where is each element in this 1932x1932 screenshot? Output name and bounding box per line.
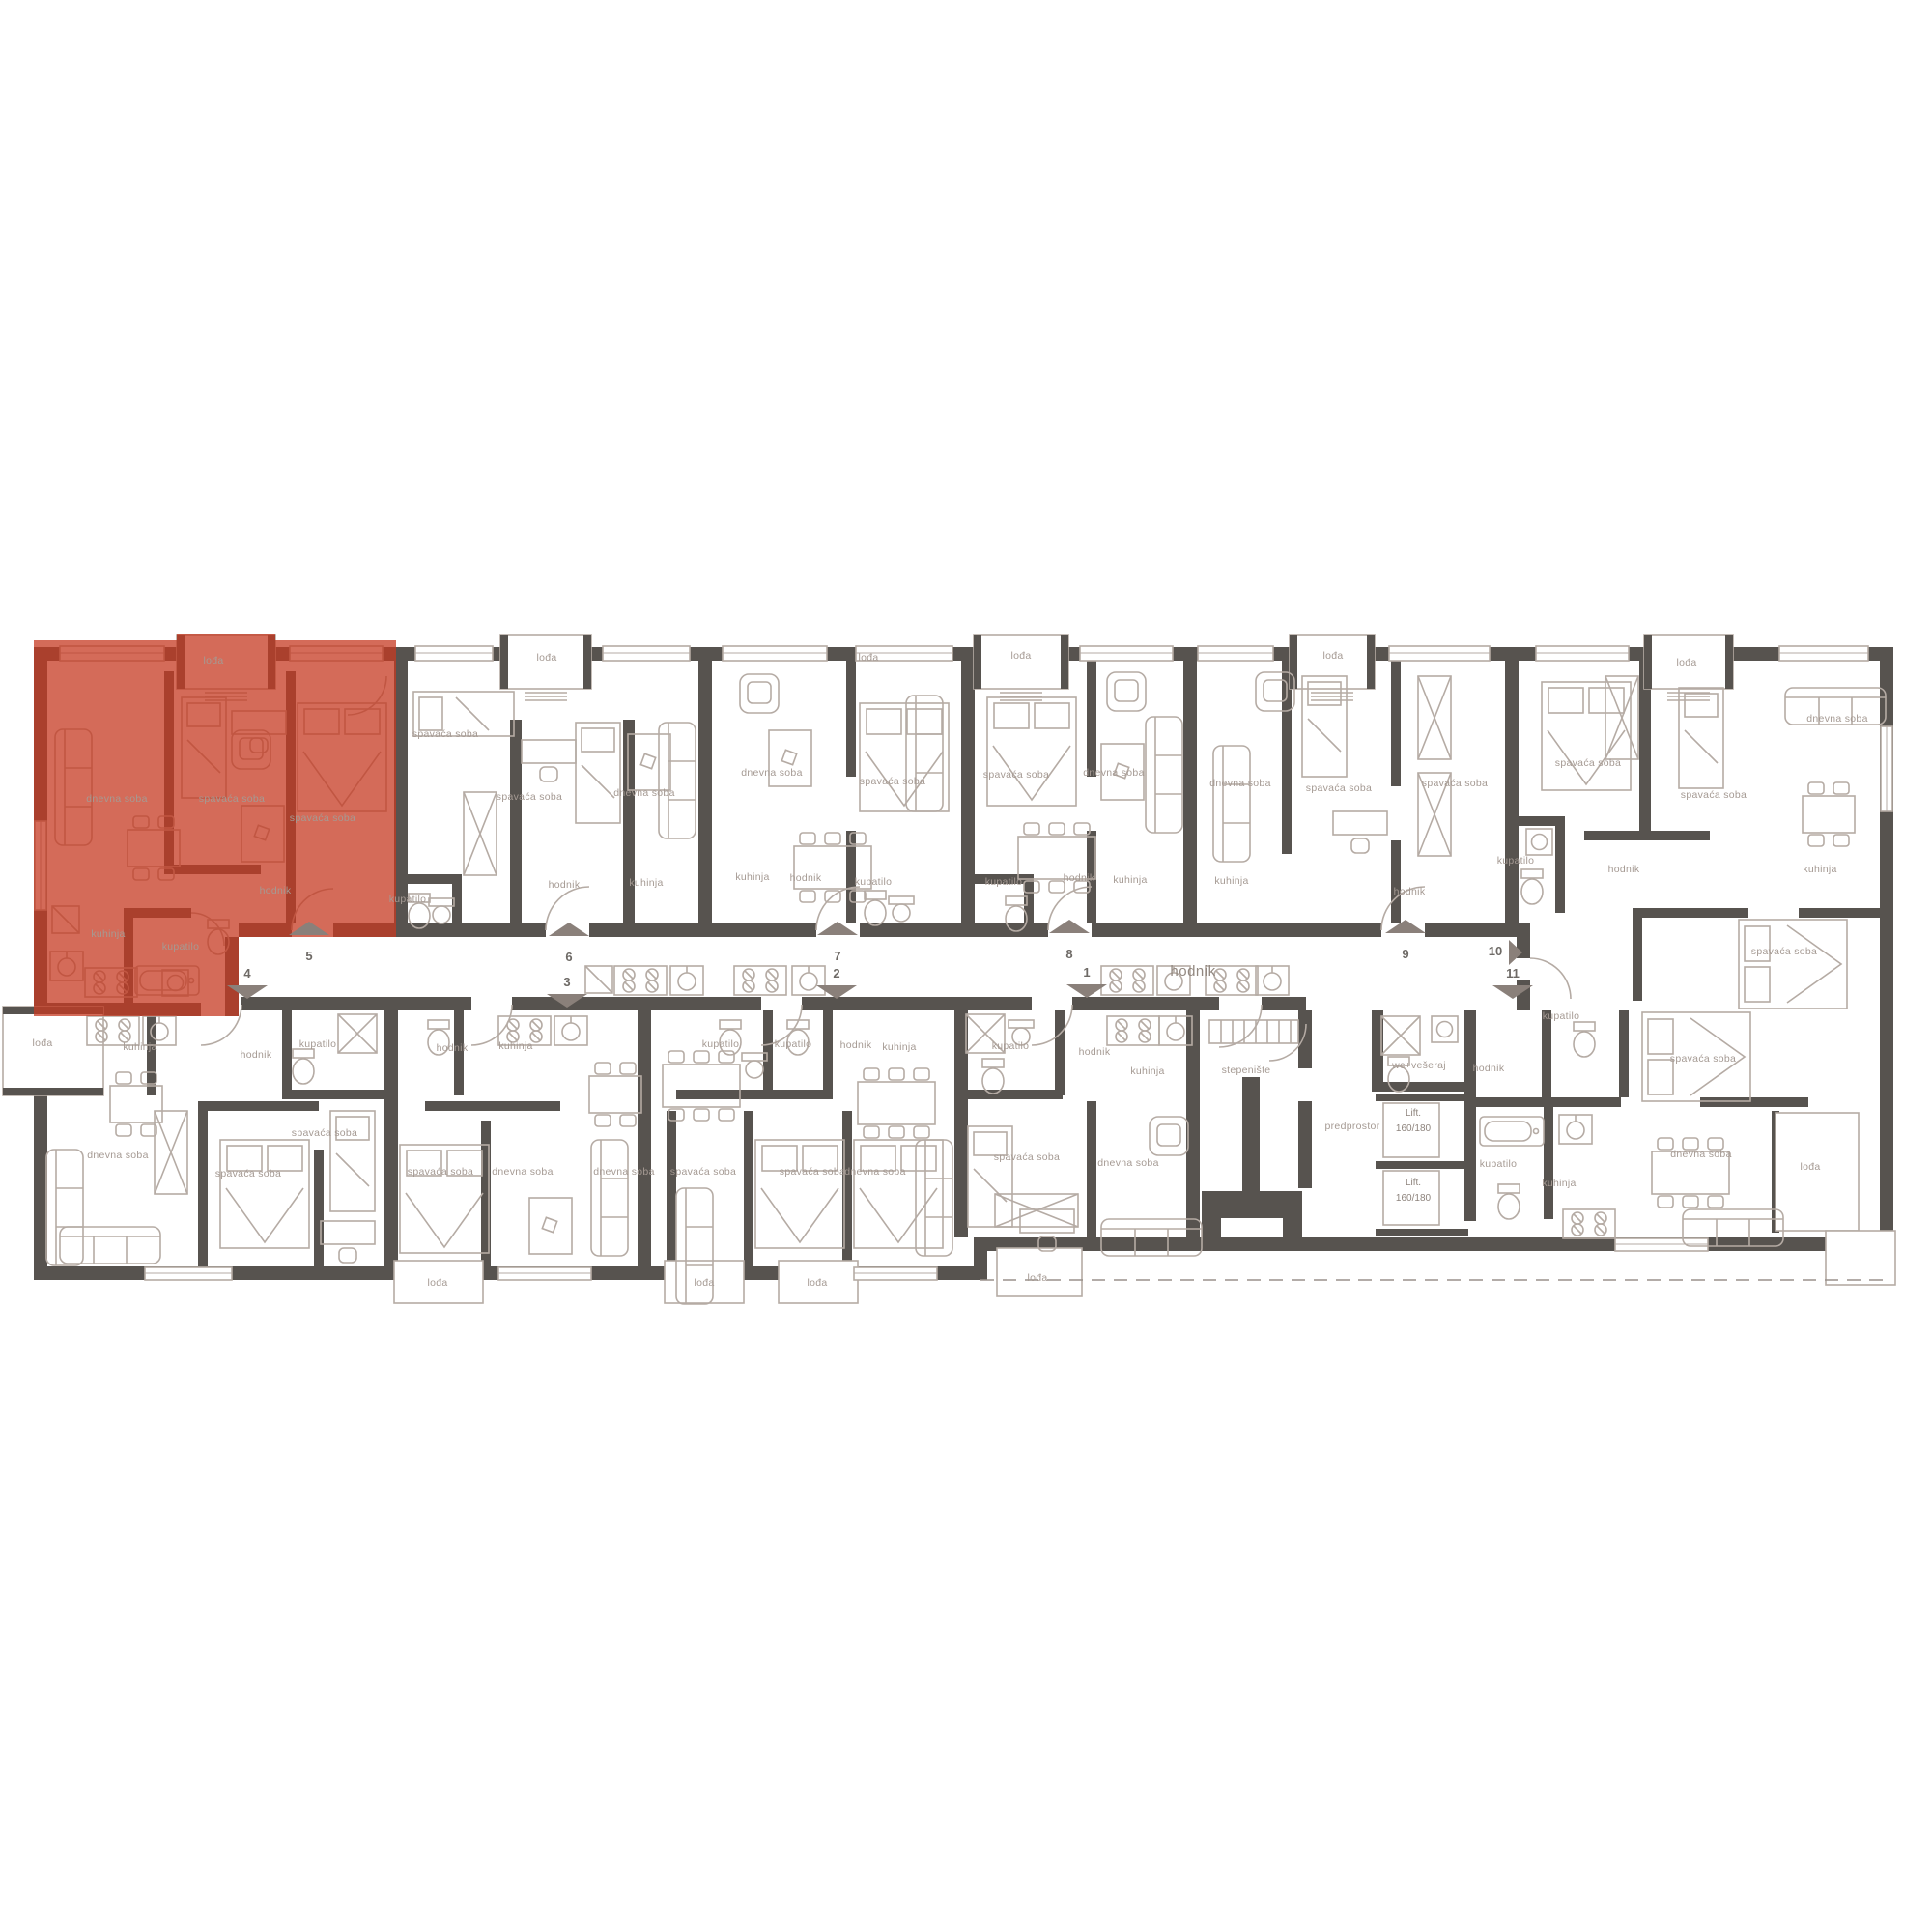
double-bed-icon: [400, 1145, 489, 1253]
room-label: lođa: [1027, 1272, 1047, 1284]
room-label: kupatilo: [855, 876, 893, 888]
room-label: kuhinja: [1130, 1065, 1164, 1077]
desk-icon: [321, 1221, 375, 1263]
room-label: spavaća soba: [670, 1166, 736, 1178]
single-bed-icon: [330, 1111, 375, 1211]
lift-label: Lift.: [1406, 1178, 1421, 1188]
room-label: hodnik: [241, 1049, 272, 1061]
sofa-icon: [659, 723, 696, 838]
room-label: lođa: [203, 655, 223, 667]
room-label: hodnik: [260, 885, 292, 896]
room-label: lođa: [694, 1277, 714, 1289]
wardrobe-icon: [995, 1194, 1078, 1227]
room-label: dnevna soba: [741, 767, 802, 779]
room-label: kupatilo: [1543, 1010, 1580, 1022]
walls-bottom-internal: [147, 1010, 1096, 1266]
entrance-arrow-up-icon: [817, 922, 858, 935]
sofa-icon: [46, 1150, 83, 1265]
room-label: spavaća soba: [1751, 946, 1817, 957]
toilet-icon: [982, 1059, 1004, 1094]
room-label: kupatilo: [985, 876, 1023, 888]
coffee-table-icon: [529, 1198, 572, 1254]
fridge-icon: [585, 966, 612, 993]
room-label: hodnik: [790, 872, 822, 884]
apartment-marker-6[interactable]: 6: [549, 923, 589, 964]
room-label: kuhinja: [1214, 875, 1248, 887]
washer-icon: [1526, 829, 1552, 855]
apartment-number[interactable]: 11: [1506, 966, 1520, 980]
toilet-icon: [865, 891, 886, 925]
apartment-number[interactable]: 4: [243, 966, 251, 980]
room-label: dnevna soba: [1806, 713, 1867, 724]
dining-table-icon: [1803, 782, 1855, 846]
highlighted-apartment-5[interactable]: [34, 634, 396, 1016]
double-bed-icon: [1739, 920, 1847, 1009]
washer-icon: [1432, 1016, 1458, 1042]
room-label: kuhinja: [498, 1040, 532, 1052]
armchair-icon: [740, 674, 779, 713]
floor-plan-svg: dnevna sobalođaspavaća sobaspavaća sobak…: [0, 0, 1932, 1932]
room-label: lođa: [858, 652, 878, 664]
room-label: lođa: [427, 1277, 447, 1289]
single-bed-icon: [576, 723, 620, 823]
entrance-arrow-up-icon: [549, 923, 589, 936]
room-label: kuhinja: [1113, 874, 1147, 886]
stove-icon: [1101, 966, 1153, 995]
apartment-number[interactable]: 9: [1402, 947, 1408, 961]
room-label: kuhinja: [1803, 864, 1836, 875]
apartment-number[interactable]: 8: [1065, 947, 1072, 961]
armchair-icon: [1150, 1117, 1188, 1155]
double-bed-icon: [220, 1140, 309, 1248]
room-label: spavaća soba: [215, 1168, 281, 1179]
room-label: kupatilo: [775, 1038, 812, 1050]
bathtub-icon: [1480, 1117, 1544, 1146]
dining-table-icon: [858, 1068, 935, 1138]
room-label: lođa: [1676, 657, 1696, 668]
room-label: dnevna soba: [87, 1150, 148, 1161]
room-label: dnevna soba: [492, 1166, 553, 1178]
double-bed-icon: [755, 1140, 844, 1248]
room-label: hodnik: [1394, 886, 1426, 897]
desk-icon: [1333, 811, 1387, 853]
room-label: kupatilo: [1480, 1158, 1518, 1170]
room-label: spavaća soba: [290, 812, 355, 824]
dining-table-icon: [794, 833, 871, 902]
room-label: hodnik: [1608, 864, 1640, 875]
room-label: spavaća soba: [1306, 782, 1372, 794]
room-label: spavaća soba: [860, 776, 925, 787]
apartment-number[interactable]: 6: [565, 950, 572, 964]
stairs-treads: [1209, 1020, 1298, 1043]
bath-sink-icon: [889, 896, 914, 922]
apartment-number[interactable]: 10: [1489, 944, 1502, 958]
room-label: lođa: [32, 1037, 52, 1049]
loggia-bumps-top: [177, 635, 1733, 700]
room-label: dnevna soba: [1209, 778, 1270, 789]
apartment-marker-9[interactable]: 9: [1385, 920, 1426, 961]
single-bed-icon: [1302, 676, 1347, 777]
floor-plan-canvas: dnevna sobalođaspavaća sobaspavaća sobak…: [0, 0, 1932, 1932]
lift-label: Lift.: [1406, 1108, 1421, 1119]
room-label: kuhinja: [1542, 1178, 1576, 1189]
room-label: spavaća soba: [199, 793, 265, 805]
room-label: kuhinja: [629, 877, 663, 889]
stove-icon: [1563, 1209, 1615, 1238]
room-label: dnevna soba: [593, 1166, 654, 1178]
stove-icon: [734, 966, 786, 995]
walls-corridor: [239, 923, 1530, 1010]
double-bed-icon: [987, 697, 1076, 806]
wardrobe-icon: [464, 792, 497, 875]
sofa-icon: [591, 1140, 628, 1256]
wardrobe-icon: [155, 1111, 187, 1194]
room-label: lođa: [807, 1277, 827, 1289]
apartment-number[interactable]: 1: [1083, 965, 1090, 980]
kitchen-sink-icon: [792, 966, 825, 995]
walls-top-internal: [394, 661, 1893, 1001]
room-label: hodnik: [437, 1042, 469, 1054]
single-bed-icon: [1679, 688, 1723, 788]
entrance-arrow-up-icon: [1049, 920, 1090, 933]
room-label: lođa: [536, 652, 556, 664]
wardrobe-icon: [1418, 676, 1451, 759]
toilet-icon: [1521, 869, 1543, 904]
room-label: spavaća soba: [1422, 778, 1488, 789]
room-label: spavaća soba: [1681, 789, 1747, 801]
double-bed-icon: [1542, 682, 1631, 790]
sofa-icon: [1146, 717, 1182, 833]
room-label: spavaća soba: [292, 1127, 357, 1139]
toilet-icon: [1498, 1184, 1520, 1219]
room-label: lođa: [1322, 650, 1343, 662]
apartment-number[interactable]: 7: [834, 949, 840, 963]
room-label: kupatilo: [992, 1040, 1030, 1052]
room-label: kupatilo: [702, 1038, 740, 1050]
apartment-marker-2[interactable]: 2: [816, 966, 857, 999]
room-label: hodnik: [1064, 872, 1095, 884]
room-label: kupatilo: [1497, 855, 1535, 867]
double-bed-icon: [860, 703, 949, 811]
kitchen-sink-icon: [670, 966, 703, 995]
wardrobe-icon: [1605, 676, 1638, 759]
bath-sink-icon: [429, 898, 454, 923]
single-bed-icon: [968, 1126, 1012, 1227]
room-label: predprostor: [1325, 1121, 1380, 1132]
sofa-icon: [60, 1227, 160, 1264]
room-label: kuhinja: [123, 1041, 156, 1053]
room-label: stepenište: [1222, 1065, 1271, 1076]
room-label: spavaća soba: [983, 769, 1049, 781]
room-label: dnevna soba: [86, 793, 147, 805]
stove-icon: [1107, 1016, 1159, 1045]
room-label: dnevna soba: [613, 787, 674, 799]
shower-icon: [338, 1014, 377, 1053]
room-label: dnevna soba: [844, 1166, 905, 1178]
kitchen-sink-icon: [554, 1016, 587, 1045]
room-label: kuhinja: [735, 871, 769, 883]
room-label: spavaća soba: [412, 728, 478, 740]
sofa-icon: [916, 1140, 952, 1256]
lift-size-label: 160/180: [1396, 1193, 1432, 1204]
toilet-icon: [1574, 1022, 1595, 1057]
dining-table-icon: [663, 1051, 740, 1121]
sofa-icon: [1213, 746, 1250, 862]
room-label: spavaća soba: [1670, 1053, 1736, 1065]
toilet-icon: [293, 1049, 314, 1084]
room-label: kupatilo: [299, 1038, 337, 1050]
armchair-icon: [1107, 672, 1146, 711]
room-label: spavaća soba: [497, 791, 562, 803]
room-label: hodnik: [1473, 1063, 1505, 1074]
room-label: spavaća soba: [408, 1166, 473, 1178]
kitchen-sink-icon: [1256, 966, 1289, 995]
corridor-label: hodnik: [1170, 963, 1215, 980]
dining-table-icon: [589, 1063, 641, 1126]
apartment-number[interactable]: 5: [305, 949, 312, 963]
apartment-marker-7[interactable]: 7: [817, 922, 858, 963]
kitchen-sink-icon: [1559, 1115, 1592, 1144]
stove-icon: [614, 966, 667, 995]
apartment-number[interactable]: 3: [563, 975, 570, 989]
room-label: lođa: [1800, 1161, 1820, 1173]
room-label: kuhinja: [91, 928, 125, 940]
room-label: spavaća soba: [994, 1151, 1060, 1163]
desk-icon: [522, 740, 576, 781]
shower-icon: [1381, 1016, 1420, 1055]
room-label: spavaća soba: [780, 1166, 845, 1178]
lift-size-label: 160/180: [1396, 1123, 1432, 1134]
entrance-arrow-down-icon: [816, 985, 857, 999]
room-label: hodnik: [549, 879, 581, 891]
room-label: kupatilo: [162, 941, 200, 952]
room-label: kuhinja: [882, 1041, 916, 1053]
room-label: dnevna soba: [1670, 1149, 1731, 1160]
apartment-number[interactable]: 2: [833, 966, 839, 980]
room-label: dnevna soba: [1083, 767, 1144, 779]
room-label: hodnik: [840, 1039, 872, 1051]
double-bed-icon: [854, 1140, 943, 1248]
room-label: lođa: [1010, 650, 1031, 662]
room-label: dnevna soba: [1097, 1157, 1158, 1169]
room-label: wc+vešeraj: [1391, 1060, 1446, 1071]
apartment-marker-8[interactable]: 8: [1049, 920, 1090, 961]
room-label: spavaća soba: [1555, 757, 1621, 769]
room-label: kupatilo: [389, 894, 427, 905]
room-label: hodnik: [1079, 1046, 1111, 1058]
